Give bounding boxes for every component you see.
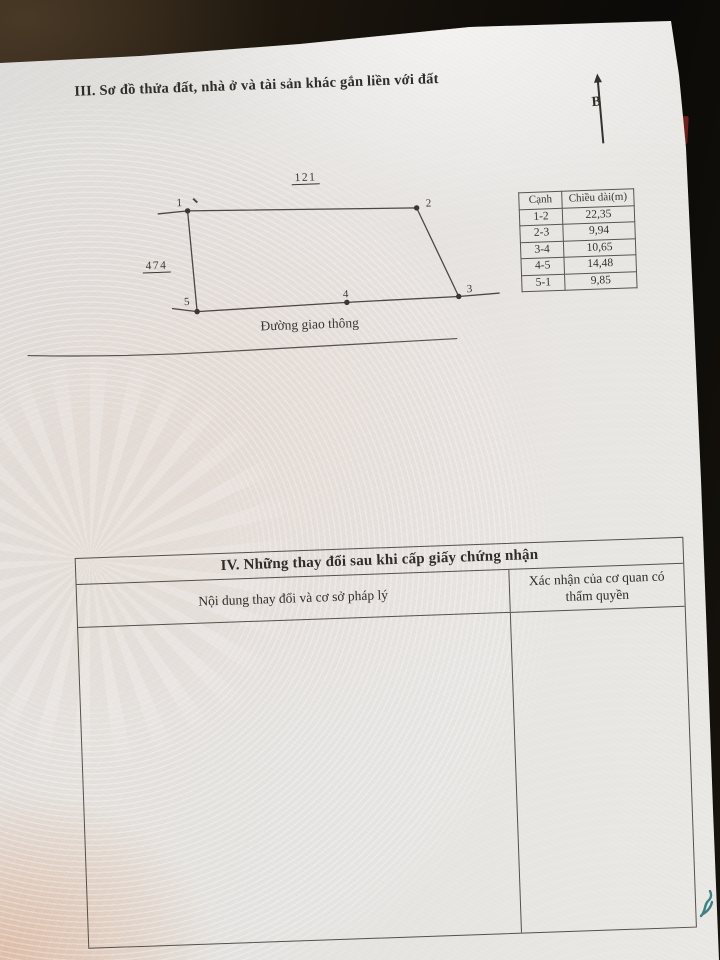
vertex-label-4: 4	[343, 288, 349, 300]
road-label: Đường giao thông	[260, 315, 359, 333]
edge-name: 4-5	[521, 257, 565, 275]
section4-col2-empty-cell	[511, 607, 696, 933]
road-line-2	[27, 339, 457, 360]
plot-diagram: 1 2 3 4 5 121 474 Đường giao thông	[15, 144, 523, 396]
vertex-dot-2	[414, 205, 420, 211]
section4-col1-empty-cell	[78, 613, 522, 948]
vertex-label-5: 5	[184, 296, 190, 308]
edge-header-canh: Cạnh	[519, 191, 563, 209]
adjacent-plot-label-top: 121	[294, 171, 316, 184]
vertex-dot-1	[185, 208, 191, 214]
road-line	[172, 293, 500, 312]
page-content: III. Sơ đồ thửa đất, nhà ở và tài sản kh…	[0, 0, 720, 960]
north-label: B	[591, 94, 602, 111]
plot-boundary-lines	[158, 202, 459, 313]
section4-body-row	[78, 607, 696, 948]
edge-length: 9,85	[565, 271, 638, 290]
stray-tick-mark	[193, 199, 197, 203]
edge-name: 3-4	[520, 241, 564, 259]
section4-col2-header: Xác nhận của cơ quan có thẩm quyền	[509, 564, 684, 612]
north-arrow-head	[593, 73, 602, 83]
edge-length-table: Cạnh Chiều dài(m) 1-2 22,35 2-3 9,94 3-4…	[518, 188, 637, 292]
teal-ink-mark	[698, 890, 718, 918]
adjacent-plot-label-left: 474	[145, 260, 167, 273]
vertex-dot-5	[194, 309, 200, 315]
photo-of-certificate: III. Sơ đồ thửa đất, nhà ở và tài sản kh…	[0, 0, 720, 960]
edge-name: 2-3	[520, 224, 564, 242]
section3-title: III. Sơ đồ thửa đất, nhà ở và tài sản kh…	[74, 69, 494, 101]
vertex-label-1: 1	[176, 197, 182, 209]
certificate-paper: III. Sơ đồ thửa đất, nhà ở và tài sản kh…	[0, 0, 720, 960]
vertex-dot-3	[456, 294, 462, 300]
north-arrow-line	[597, 80, 604, 143]
vertex-label-2: 2	[426, 197, 432, 209]
edge-name: 1-2	[519, 208, 563, 226]
north-arrow-icon: B	[589, 73, 611, 144]
section4-changes-table: IV. Những thay đổi sau khi cấp giấy chứn…	[75, 537, 697, 949]
vertex-label-3: 3	[467, 283, 473, 295]
edge-row: 5-1 9,85	[522, 271, 638, 292]
edge-name: 5-1	[522, 274, 566, 292]
